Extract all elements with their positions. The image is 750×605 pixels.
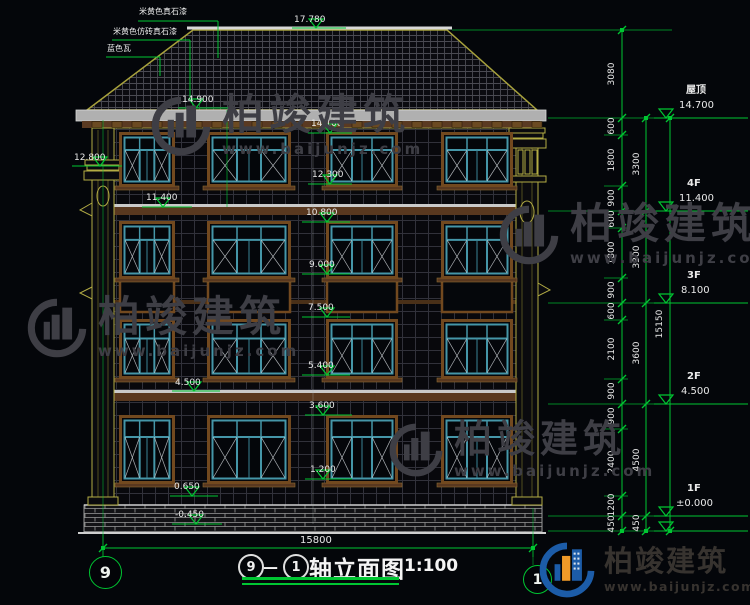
title-underline bbox=[242, 577, 399, 580]
axis-bubble-9: 9 bbox=[89, 556, 122, 589]
dim-value: 900 bbox=[608, 281, 618, 298]
window bbox=[322, 321, 402, 383]
window bbox=[115, 417, 179, 488]
floor-value: ±0.000 bbox=[676, 498, 713, 509]
watermark-url: www.baijunjz.com bbox=[454, 462, 655, 480]
dim-value: 900 bbox=[608, 382, 618, 399]
brand-logo: 柏竣建筑 www.baijunjz.com bbox=[538, 541, 750, 599]
floor-value: 8.100 bbox=[681, 285, 710, 296]
elevation-value: 17.780 bbox=[294, 16, 326, 26]
watermark-url: www.baijunjz.com bbox=[222, 140, 423, 158]
watermark: 柏竣建筑 www.baijunjz.com bbox=[26, 296, 299, 360]
dim-value: 600 bbox=[608, 117, 618, 134]
watermark-name: 柏竣建筑 bbox=[98, 296, 299, 338]
dim-value: 1800 bbox=[608, 149, 618, 172]
watermark: 柏竣建筑 www.baijunjz.com bbox=[498, 203, 750, 267]
watermark-logo-icon bbox=[150, 95, 212, 157]
brand-url: www.baijunjz.com bbox=[604, 579, 750, 594]
watermark-logo-icon bbox=[498, 204, 560, 266]
elevation-value: 4.500 bbox=[175, 379, 201, 389]
dim-value: 3300 bbox=[633, 153, 643, 176]
material-note: 米黄色仿砖真石漆 bbox=[113, 28, 177, 37]
elevation-value: 7.500 bbox=[308, 304, 334, 314]
watermark-name: 柏竣建筑 bbox=[222, 94, 423, 136]
floor-label: 屋顶 bbox=[686, 85, 706, 96]
dim-value: 600 bbox=[608, 302, 618, 319]
dim-value: 3600 bbox=[633, 342, 643, 365]
floor-label: 2F bbox=[687, 371, 701, 382]
elevation-value: 12.300 bbox=[312, 171, 344, 181]
dim-value: 450 bbox=[608, 515, 618, 532]
elevation-value: 12.800 bbox=[74, 154, 106, 164]
floor-label: 1F bbox=[687, 483, 701, 494]
elevation-value: 10.800 bbox=[306, 209, 338, 219]
floor-value: 14.700 bbox=[679, 100, 714, 111]
watermark-name: 柏竣建筑 bbox=[454, 420, 655, 458]
floor-label: 3F bbox=[687, 270, 701, 281]
elevation-value: 5.400 bbox=[308, 362, 334, 372]
title-underline bbox=[242, 583, 399, 586]
watermark-logo-icon bbox=[26, 297, 88, 359]
elevation-value: 1.200 bbox=[310, 466, 336, 476]
watermark-logo-icon bbox=[388, 422, 444, 478]
material-note: 蓝色瓦 bbox=[107, 45, 131, 54]
watermark: 柏竣建筑 www.baijunjz.com bbox=[388, 420, 655, 480]
elevation-drawing: 米黄色真石漆 米黄色仿砖真石漆 蓝色瓦 17.780 14.900 14.100… bbox=[0, 0, 750, 605]
window bbox=[115, 223, 179, 283]
floor-label: 4F bbox=[687, 178, 701, 189]
elevation-value: 11.400 bbox=[146, 194, 178, 204]
window bbox=[203, 417, 295, 488]
elevation-value: 0.650 bbox=[174, 483, 200, 493]
dim-value: 1200 bbox=[608, 494, 618, 517]
material-note: 米黄色真石漆 bbox=[139, 8, 187, 17]
elevation-value: 3.600 bbox=[309, 402, 335, 412]
dim-value-overall-width: 15800 bbox=[300, 535, 332, 546]
brand-name: 柏竣建筑 bbox=[604, 547, 750, 576]
elevation-value: -0.450 bbox=[175, 511, 204, 521]
window bbox=[437, 321, 517, 383]
watermark-name: 柏竣建筑 bbox=[570, 203, 750, 245]
window bbox=[322, 223, 402, 283]
floor-value: 4.500 bbox=[681, 386, 710, 397]
watermark-url: www.baijunjz.com bbox=[98, 342, 299, 360]
window bbox=[437, 134, 517, 191]
brand-logo-icon bbox=[538, 541, 596, 599]
drawing-scale: 1:100 bbox=[404, 556, 458, 576]
window bbox=[203, 223, 295, 283]
dim-value: 450 bbox=[633, 514, 643, 531]
watermark: 柏竣建筑 www.baijunjz.com bbox=[150, 94, 423, 158]
dim-value: 2100 bbox=[608, 338, 618, 361]
title-dash: — bbox=[263, 558, 278, 576]
dim-value-overall-height: 15150 bbox=[656, 310, 666, 339]
watermark-url: www.baijunjz.com bbox=[570, 249, 750, 267]
elevation-value: 9.000 bbox=[309, 261, 335, 271]
dim-value: 3080 bbox=[608, 63, 618, 86]
